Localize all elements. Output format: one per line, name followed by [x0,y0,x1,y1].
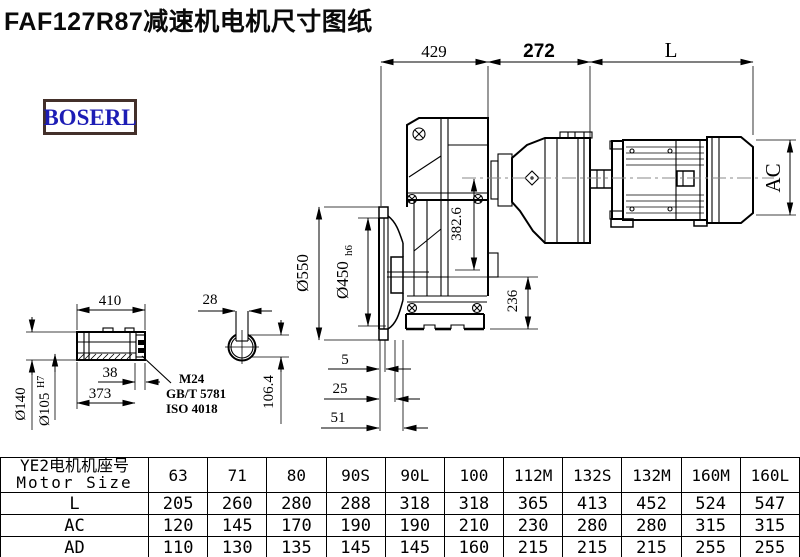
cell: 524 [681,493,740,515]
gear-stage [491,132,612,243]
col-header: 90S [326,458,385,493]
hatch-pattern [79,354,132,359]
table-row: AC 120 145 170 190 190 210 230 280 280 3… [1,515,800,537]
cell: 318 [385,493,444,515]
output-flange [379,207,403,431]
col-header: 90L [385,458,444,493]
shaft-detail: 410 Ø140 Ø105 H7 38 373 [13,293,226,430]
dim-dia140: Ø140 [13,387,29,420]
cell: 280 [622,515,681,537]
cell: 255 [681,537,740,557]
dim-dia105: Ø105 [37,393,53,426]
row-label: AD [1,537,149,557]
cell: 230 [504,515,563,537]
dim-28: 28 [203,292,218,308]
col-header: 160L [740,458,799,493]
dim-L: L [665,38,678,62]
col-header: 132S [563,458,622,493]
dim-51: 51 [331,410,346,426]
cell: 315 [681,515,740,537]
cell: 170 [267,515,326,537]
cell: 288 [326,493,385,515]
cell: 215 [622,537,681,557]
dim-25: 25 [333,381,348,397]
cell: 205 [149,493,208,515]
dimension-heights: 382.6 236 [448,179,538,329]
dim-272: 272 [523,41,555,62]
dim-5: 5 [341,352,349,368]
dim-38: 38 [103,365,118,381]
mounting-foot [406,314,484,329]
cell: 315 [740,515,799,537]
table-header-row: YE2电机机座号 Motor Size 63 71 80 90S 90L 100… [1,458,800,493]
cell: 260 [208,493,267,515]
fan-cowl [707,137,753,223]
cell: 318 [444,493,503,515]
dimension-ac: AC [756,140,796,215]
thread-spec: M24 [179,371,205,386]
dim-dia450-tolerance: h6 [343,245,355,257]
cell: 255 [740,537,799,557]
motor [462,137,774,227]
cell: 130 [208,537,267,557]
bolt-icon [408,128,483,313]
table-header-motor-size: YE2电机机座号 Motor Size [1,458,149,493]
col-header: 132M [622,458,681,493]
cell: 190 [385,515,444,537]
drawing-page: FAF127R87减速机电机尺寸图纸 BOSERL 429 272 L [0,0,800,557]
dim-382-6: 382.6 [449,207,465,241]
dim-373: 373 [89,386,112,402]
motor-fins [626,147,704,213]
dim-dia550: Ø550 [293,254,312,292]
cell: 547 [740,493,799,515]
cell: 160 [444,537,503,557]
dim-dia105-tolerance: H7 [36,376,47,388]
cell: 190 [326,515,385,537]
cell: 413 [563,493,622,515]
col-header: 160M [681,458,740,493]
cell: 135 [267,537,326,557]
col-header: 112M [504,458,563,493]
dim-410: 410 [99,293,122,309]
col-header: 71 [208,458,267,493]
dim-236: 236 [505,289,521,312]
cell: 452 [622,493,681,515]
cell: 145 [208,515,267,537]
col-header: 80 [267,458,326,493]
cell: 280 [267,493,326,515]
cell: 215 [563,537,622,557]
cell: 110 [149,537,208,557]
col-header: 100 [444,458,503,493]
cell: 365 [504,493,563,515]
dimension-top-group: 429 272 L [381,38,753,206]
dimension-diameters: Ø550 Ø450 h6 [293,207,386,340]
col-header: 63 [149,458,208,493]
dimension-flange-thickness: 5 25 51 [321,352,428,428]
dim-106-4: 106.4 [261,375,277,409]
cell: 280 [563,515,622,537]
header-en: Motor Size [1,475,148,492]
motor-size-table: YE2电机机座号 Motor Size 63 71 80 90S 90L 100… [0,457,800,557]
row-label: L [1,493,149,515]
cell: 215 [504,537,563,557]
table-row: L 205 260 280 288 318 318 365 413 452 52… [1,493,800,515]
table-row: AD 110 130 135 145 145 160 215 215 215 2… [1,537,800,557]
cell: 120 [149,515,208,537]
cell: 145 [326,537,385,557]
thread-standard-iso: ISO 4018 [166,401,218,416]
thread-standard-gb: GB/T 5781 [166,386,226,401]
dim-429: 429 [421,42,447,61]
dim-ac: AC [761,163,785,192]
cell: 145 [385,537,444,557]
row-label: AC [1,515,149,537]
dim-dia450: Ø450 [333,261,352,299]
cell: 210 [444,515,503,537]
